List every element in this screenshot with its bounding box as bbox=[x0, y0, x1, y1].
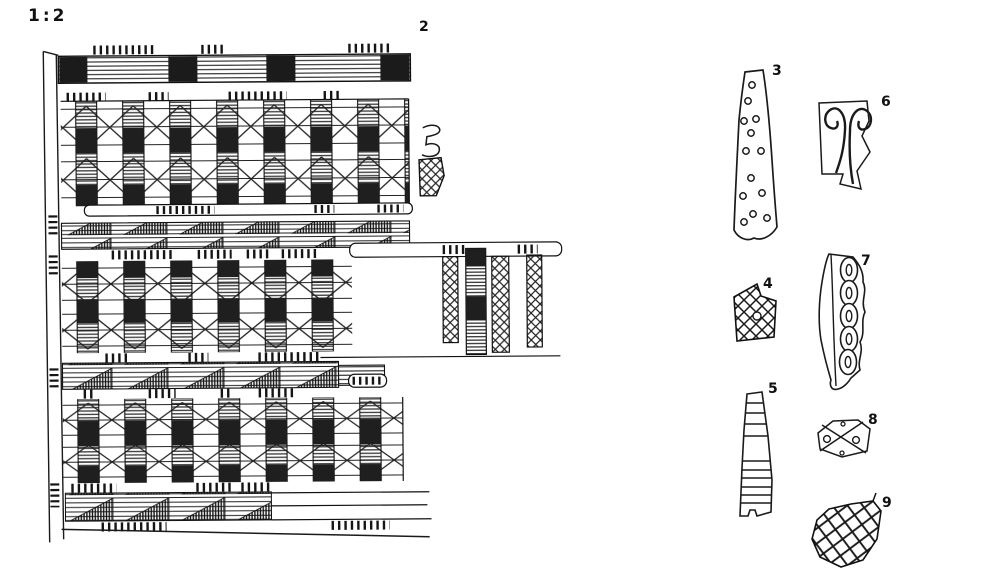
band-field-row2 bbox=[62, 248, 561, 359]
artifacts-drawing bbox=[0, 0, 1000, 577]
artifact-2-number: 2 bbox=[419, 19, 429, 35]
band-left-edge bbox=[43, 51, 63, 542]
artifact-3-holes bbox=[740, 82, 770, 225]
artifact-6-number: 6 bbox=[881, 94, 891, 110]
band-sawtooth-row2 bbox=[61, 220, 561, 259]
figure-plate: 1:2 bbox=[0, 0, 1000, 577]
artifact-3-drawing bbox=[734, 70, 777, 240]
spiral-left bbox=[825, 108, 845, 173]
artifact-5-number: 5 bbox=[768, 381, 778, 397]
artifact-9-drawing bbox=[812, 493, 881, 567]
band-field-row3 bbox=[63, 397, 404, 488]
artifact-5-drawing bbox=[736, 392, 776, 516]
band-sawtooth-row3 bbox=[62, 361, 386, 394]
artifact-9-number: 9 bbox=[882, 495, 892, 511]
band-bottom-border bbox=[61, 491, 431, 540]
artifact-8-number: 8 bbox=[868, 412, 878, 428]
artifact-8-drawing bbox=[818, 420, 870, 457]
artifact-4-drawing bbox=[734, 284, 776, 341]
band-detached-fragment bbox=[419, 125, 444, 196]
artifact-3-number: 3 bbox=[772, 63, 782, 79]
artifact-4-number: 4 bbox=[763, 276, 773, 292]
artifact-7-drawing bbox=[819, 254, 865, 389]
band-top-border bbox=[58, 48, 410, 97]
band-field-row1 bbox=[61, 99, 413, 216]
artifact-6-drawing bbox=[819, 101, 871, 189]
artifact-7-number: 7 bbox=[861, 253, 871, 269]
artifact-2-band-drawing bbox=[43, 47, 563, 543]
